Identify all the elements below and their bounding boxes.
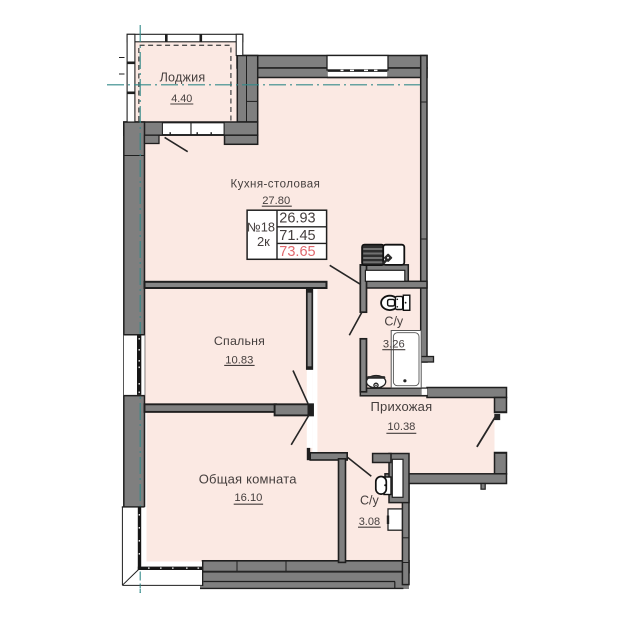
svg-text:Лоджия: Лоджия <box>160 71 206 85</box>
svg-text:3.08: 3.08 <box>359 516 380 528</box>
svg-text:16.10: 16.10 <box>234 492 262 504</box>
svg-text:4.40: 4.40 <box>171 93 192 105</box>
svg-text:Прихожая: Прихожая <box>370 399 432 414</box>
svg-text:Общая комната: Общая комната <box>199 472 297 487</box>
svg-text:3.26: 3.26 <box>383 339 405 351</box>
svg-text:С/у: С/у <box>384 315 404 329</box>
svg-text:2к: 2к <box>257 234 270 249</box>
svg-text:10.83: 10.83 <box>225 354 253 366</box>
svg-text:Спальня: Спальня <box>214 334 265 348</box>
svg-text:73.65: 73.65 <box>279 244 315 260</box>
svg-text:10.38: 10.38 <box>387 421 415 433</box>
svg-text:27.80: 27.80 <box>262 195 290 207</box>
svg-text:26.93: 26.93 <box>279 210 315 226</box>
svg-text:С/у: С/у <box>360 494 380 508</box>
svg-text:№18: №18 <box>247 220 275 235</box>
svg-text:Кухня-столовая: Кухня-столовая <box>231 178 321 190</box>
svg-text:71.45: 71.45 <box>279 228 315 244</box>
